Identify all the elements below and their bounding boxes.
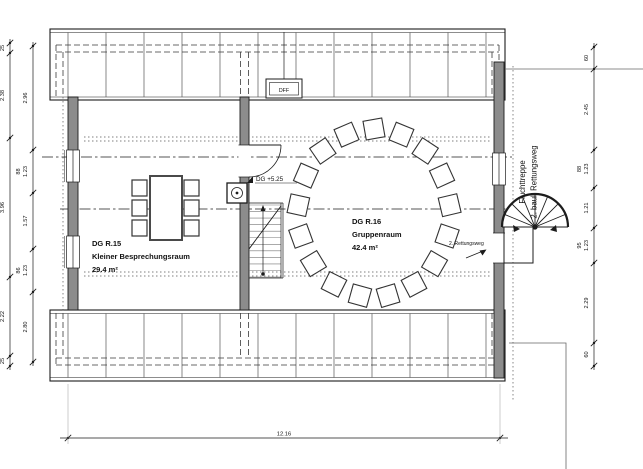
dim-label-total: 12.16 [277, 432, 292, 438]
level-marker: DG +5.25 [247, 176, 297, 183]
door-swing-arc [249, 145, 281, 177]
window-left-upper [65, 150, 80, 182]
floor-plan-svg: DFF [0, 0, 643, 469]
dim-label: 1.21 [584, 203, 590, 214]
door-center [239, 145, 282, 177]
dim-label: 2.29 [584, 298, 590, 309]
floor-plan-canvas: DFF [0, 0, 643, 469]
room-area: 29.4 m² [92, 265, 118, 274]
stair-direction-arrow [261, 205, 266, 211]
roof-window-label: DFF [279, 88, 290, 94]
chair [293, 163, 318, 188]
escape-route: 2. Rettungsweg [449, 241, 487, 258]
staircase [249, 203, 283, 278]
level-label: DG +5.25 [256, 176, 284, 183]
adjacent-structure-lines [505, 69, 643, 469]
chair [132, 200, 147, 216]
chair [132, 180, 147, 196]
meeting-table [150, 176, 182, 240]
wall-left [68, 97, 78, 310]
room-label-r15: DG R.15 Kleiner Besprechungsraum 29.4 m² [92, 239, 190, 274]
escape-route-label: 2. Rettungsweg [449, 241, 484, 247]
dim-label: 1.23 [23, 166, 29, 177]
stair-treads [249, 205, 281, 277]
chair [389, 122, 414, 147]
chimney [227, 183, 247, 203]
chair [321, 272, 347, 298]
dim-label: 2.45 [584, 104, 590, 115]
chair [401, 272, 427, 298]
room-name: Gruppenraum [352, 230, 402, 239]
escape-route-arrow-icon [480, 250, 487, 256]
dim-label: 1.23 [584, 164, 590, 175]
room-area: 42.4 m² [352, 243, 378, 252]
stair-break-line [249, 206, 281, 249]
escape-stair-line1: Fluchttreppe [518, 160, 527, 203]
room-label-r16: DG R.16 Gruppenraum 42.4 m² [352, 217, 402, 252]
spiral-stair-landing [504, 227, 533, 263]
escape-stair-line2: 2. baul. Rettungsweg [530, 145, 539, 218]
chair [184, 180, 199, 196]
chair [363, 118, 385, 140]
dim-brh-label: 88 [16, 168, 22, 174]
window-right [493, 153, 506, 185]
chair [412, 138, 438, 164]
dim-label: 1.23 [584, 240, 590, 251]
roof-band-bottom [50, 310, 505, 381]
dim-brh-label: 95 [577, 242, 583, 248]
chair [300, 251, 326, 277]
room-name: Kleiner Besprechungsraum [92, 252, 190, 261]
meeting-table-group [132, 176, 199, 240]
chair [184, 200, 199, 216]
chair [429, 163, 454, 188]
dim-label: 25 [0, 358, 6, 364]
dim-brh-label: 88 [577, 166, 583, 172]
chair [348, 284, 371, 307]
group-room-chair-ring [287, 118, 461, 307]
chair [438, 194, 461, 217]
chair [334, 122, 359, 147]
dim-label: 2.96 [23, 93, 29, 104]
dim-label: 1.23 [23, 265, 29, 276]
dim-brh-label: 86 [16, 267, 22, 273]
chair [310, 138, 336, 164]
exit-door-right [493, 233, 505, 263]
chair [289, 224, 313, 248]
dim-label: 2.38 [0, 90, 6, 101]
chair [422, 251, 448, 277]
chair [184, 220, 199, 236]
chair [287, 194, 310, 217]
room-id: DG R.15 [92, 239, 121, 248]
chair [376, 284, 400, 308]
window-left-lower [65, 236, 80, 268]
dim-label: 60 [584, 351, 590, 357]
dim-label: 2.22 [0, 311, 6, 322]
dim-label: 2.80 [23, 322, 29, 333]
chair [132, 220, 147, 236]
dim-label: 3.96 [0, 202, 6, 213]
dim-label: 25 [0, 45, 6, 51]
dim-label: 1.57 [23, 216, 29, 227]
dim-label: 60 [584, 55, 590, 61]
room-id: DG R.16 [352, 217, 381, 226]
